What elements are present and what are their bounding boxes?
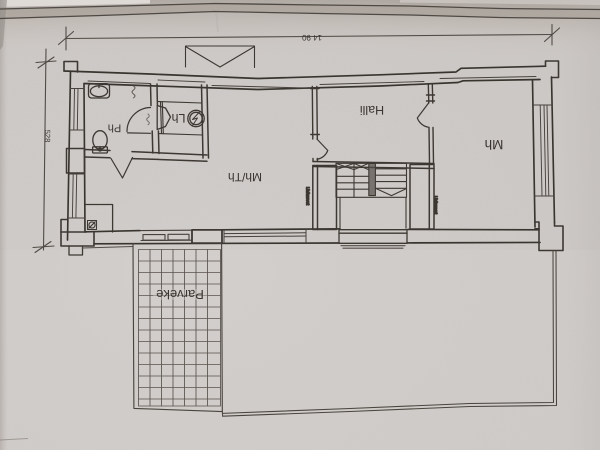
svg-text:Mh/Th: Mh/Th <box>228 170 262 184</box>
svg-text:Liukuovet: Liukuovet <box>434 196 439 215</box>
svg-text:14 90: 14 90 <box>301 33 322 42</box>
svg-text:528: 528 <box>43 130 52 143</box>
svg-text:Halli: Halli <box>360 103 384 117</box>
svg-text:Ph: Ph <box>108 122 121 134</box>
svg-text:Mh: Mh <box>485 137 504 152</box>
svg-text:Parveke: Parveke <box>156 287 204 302</box>
svg-text:Liukuovet: Liukuovet <box>306 187 311 206</box>
svg-text:Lh: Lh <box>172 111 186 125</box>
